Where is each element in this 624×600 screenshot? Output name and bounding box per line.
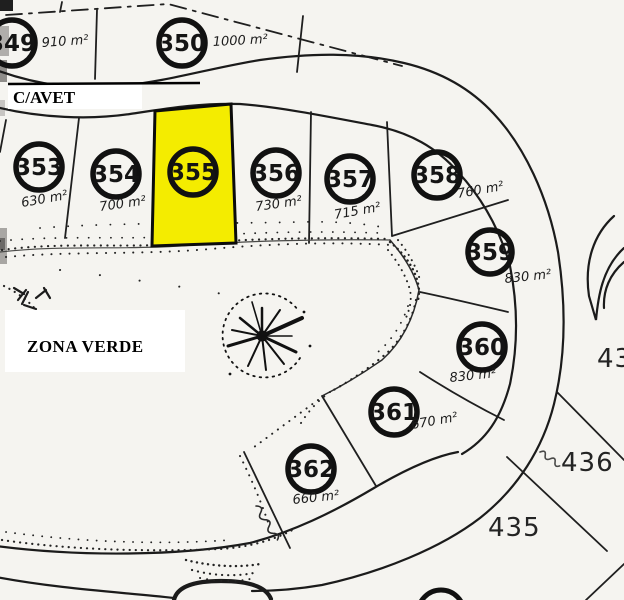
svg-text:358: 358 — [413, 163, 461, 189]
svg-text:354: 354 — [92, 162, 140, 188]
svg-text:357: 357 — [326, 167, 374, 193]
street-label: C/AVET — [13, 88, 76, 107]
svg-text:360: 360 — [458, 335, 506, 361]
svg-text:359: 359 — [466, 240, 514, 266]
svg-text:350: 350 — [158, 31, 206, 57]
plot-area-350: 1000 m² — [212, 32, 268, 50]
svg-text:355: 355 — [169, 160, 217, 186]
svg-text:349: 349 — [0, 31, 36, 57]
parcel-437-label: 437 — [597, 344, 624, 374]
svg-text:362: 362 — [287, 457, 335, 483]
svg-text:353: 353 — [15, 155, 63, 181]
cadastral-plot-map: 349 350 353 354 355 356 357 358 — [0, 0, 624, 600]
green-zone-label: ZONA VERDE — [27, 337, 144, 356]
parcel-436-label: 436 — [561, 448, 614, 478]
svg-text:356: 356 — [252, 161, 300, 187]
map-canvas: 349 350 353 354 355 356 357 358 — [0, 0, 624, 600]
parcel-435-label: 435 — [488, 513, 541, 543]
green-zone-label-box: ZONA VERDE — [5, 310, 185, 372]
